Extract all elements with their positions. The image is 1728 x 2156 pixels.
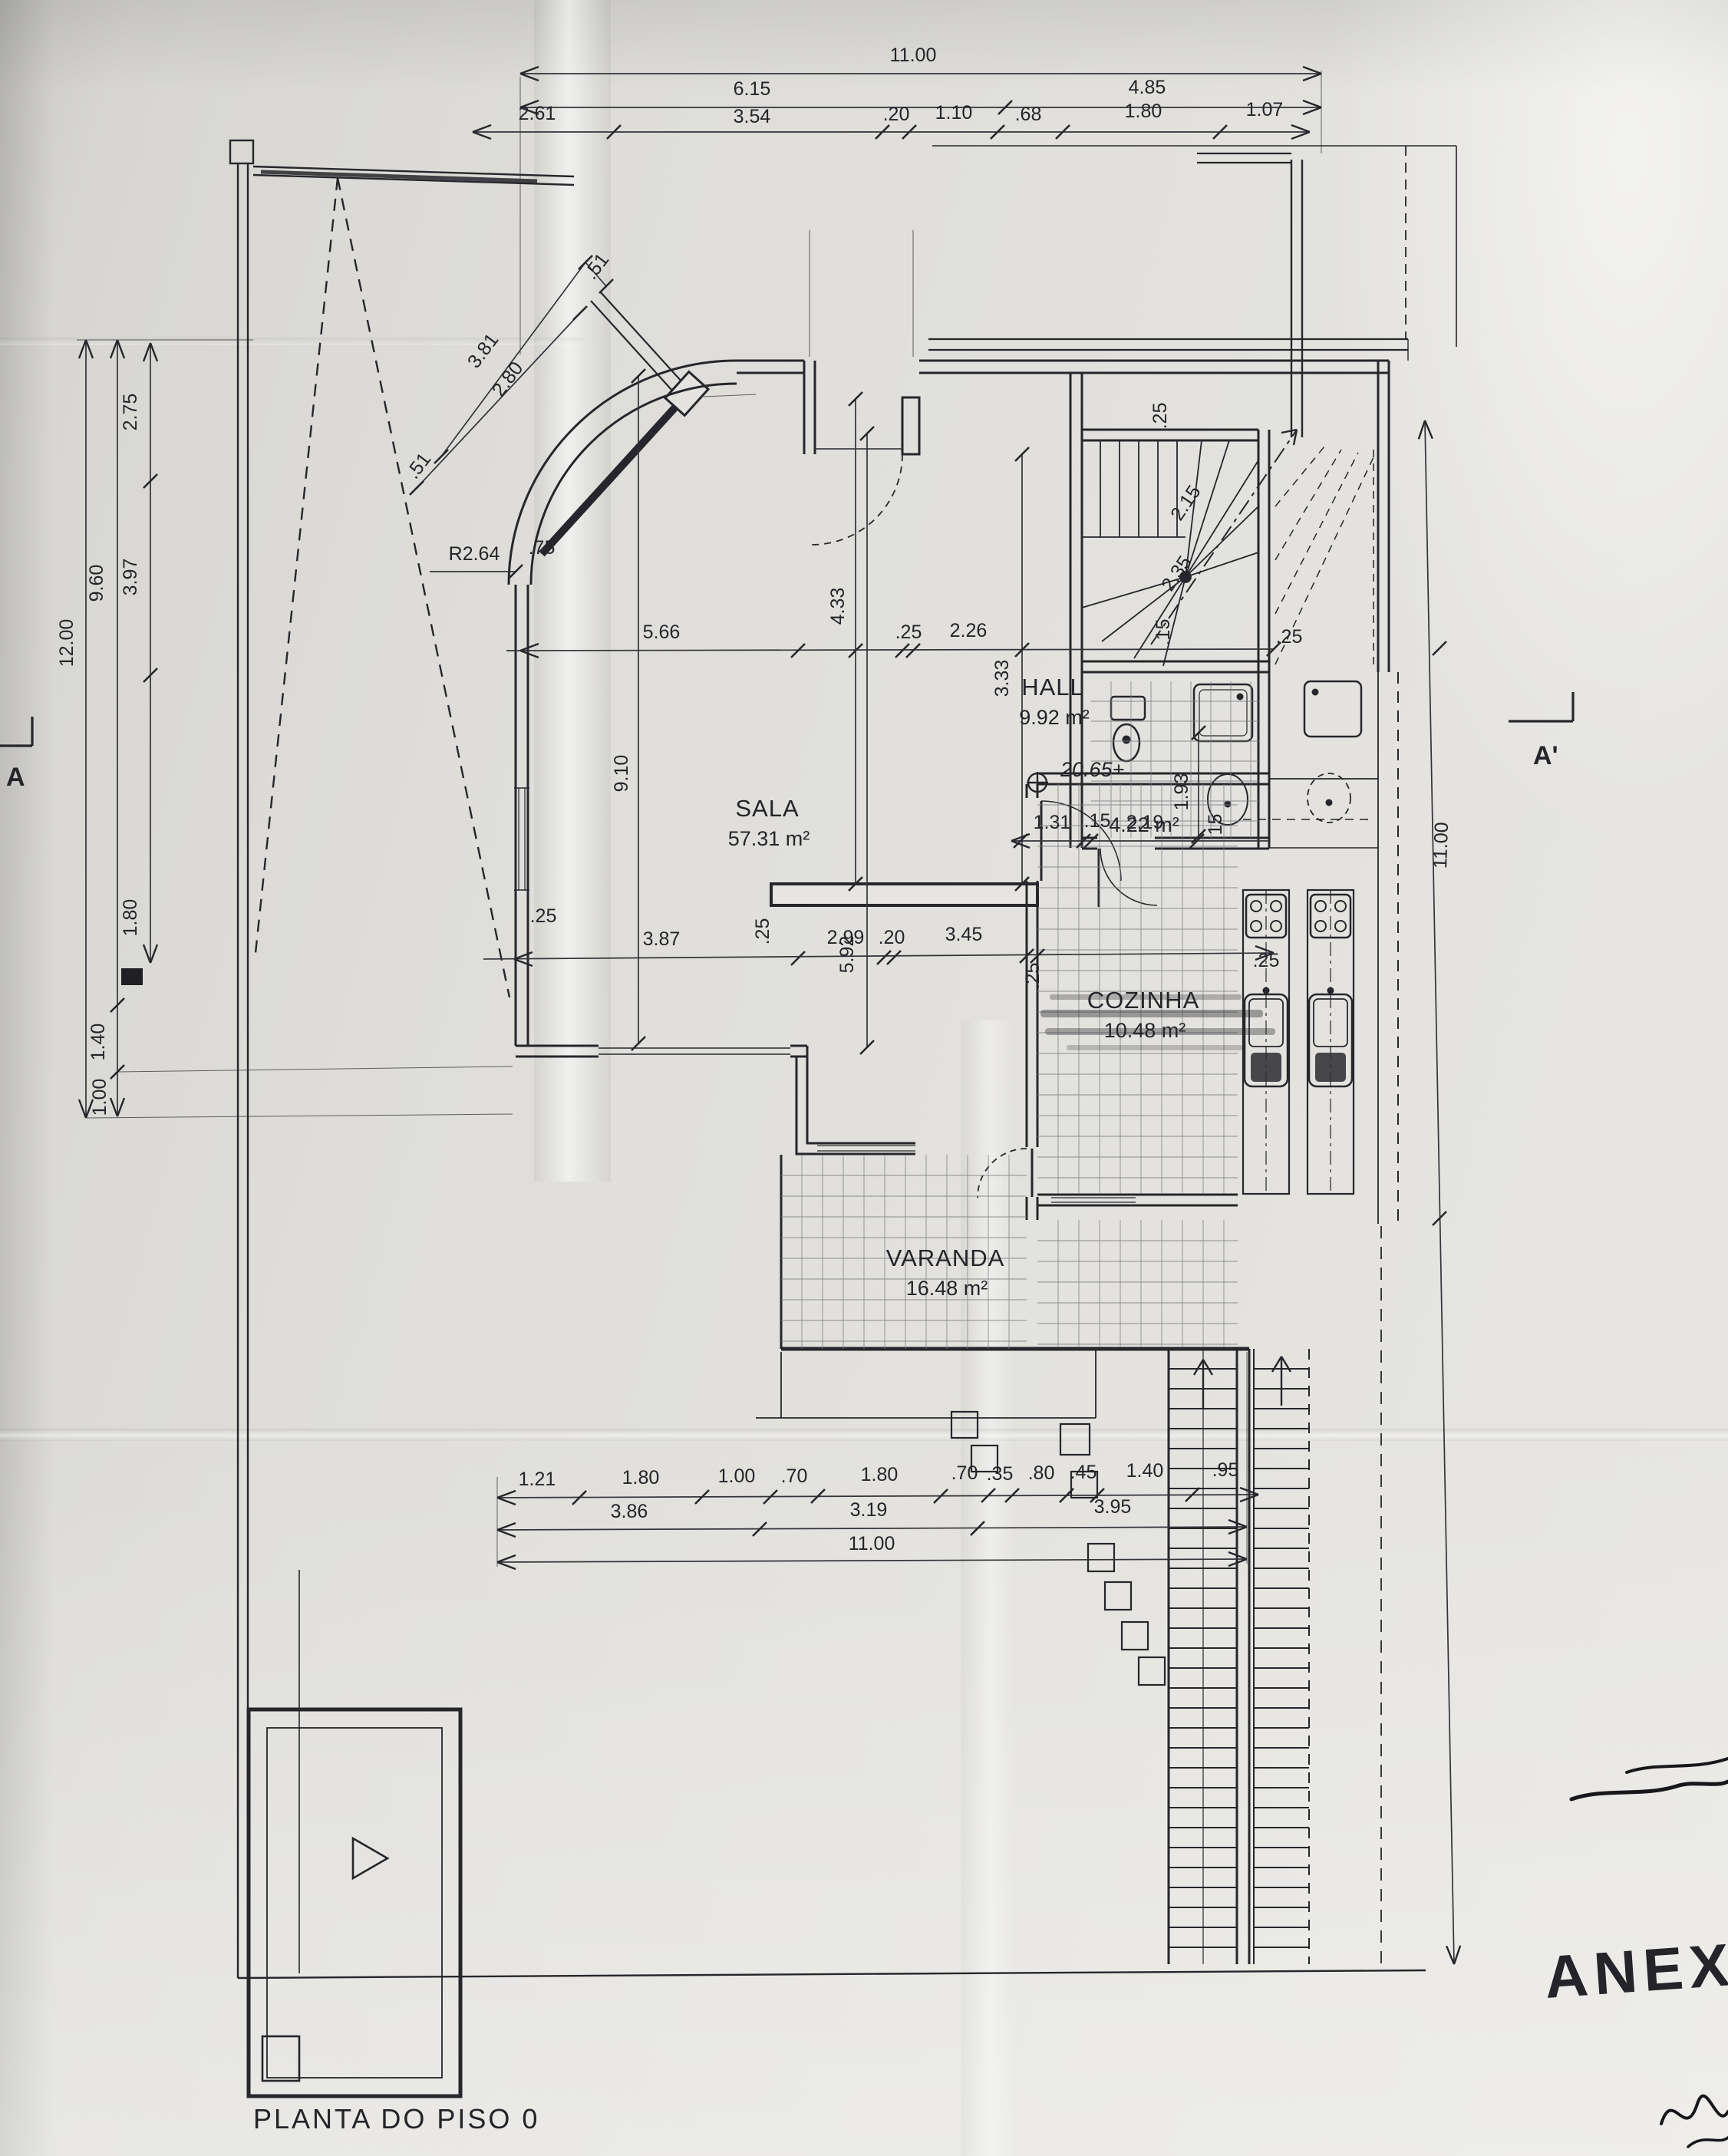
section-marker-a-prime [1509,692,1573,721]
dimension-label: .51 [402,449,435,483]
entry-door-leaf [902,397,919,454]
dimension-label: 2.80 [488,358,528,401]
dimension-label: 3.45 [945,924,983,945]
dimension-label: 3.19 [850,1499,888,1521]
level-label: 20.65+ [1060,758,1124,781]
dimension-label: R2.64 [449,543,500,565]
dimension-label: 11.00 [890,45,937,66]
site-boundary [230,140,1426,1978]
dimension-label: 2.75 [120,394,141,431]
dimension-label: .45 [1070,1462,1097,1483]
dimension-label: 1.21 [519,1469,556,1490]
dimension-label: 1.80 [861,1464,899,1485]
room-area-varanda: 16.48 m² [906,1277,988,1300]
curved-wall-inner [531,384,737,585]
kitchen-fixtures [1243,890,1354,1194]
dimension-label: 2.61 [519,103,556,124]
exterior-stair-walls [1169,1226,1381,1964]
veranda-door-swing [978,1149,1027,1198]
dimension-label: .25 [1253,950,1280,971]
dimension-label: .25 [530,905,557,927]
room-name-cozinha: COZINHA [1087,987,1200,1014]
dimension-label: .70 [951,1462,978,1484]
dimension-label: .25 [1276,626,1303,648]
dimension-label: 2.15 [1166,482,1205,525]
staircase [1082,430,1297,666]
scanned-floor-plan: A A' 20.65+ SALA57.31 m²HALL9.92 m²COZIN… [0,0,1728,2156]
dimension-label: 2.26 [950,620,988,641]
dimension-label: 1.31 [1034,812,1071,833]
dimension-label: .51 [580,249,613,284]
dimension-label: .25 [895,621,922,643]
plan-title: PLANTA DO PISO 0 [253,2103,539,2135]
floor-plan-drawing: A A' 20.65+ SALA57.31 m²HALL9.92 m²COZIN… [0,0,1728,2156]
dimension-label: .15 [1205,814,1226,841]
dimension-label: 1.80 [1125,101,1162,122]
dimension-label: 3.86 [611,1501,648,1522]
partition-wall [771,884,1037,905]
room-area-sala: 57.31 m² [728,827,810,850]
dimension-label: .70 [781,1465,808,1487]
dimension-label: 9.60 [86,565,107,602]
dimension-label: 1.00 [718,1465,756,1487]
dimension-label: 3.97 [120,559,141,596]
dimension-label: 5.66 [643,621,681,643]
dashed-projection-lines [256,178,509,997]
entry-door-swing [812,454,902,545]
dimension-label: .35 [987,1463,1014,1485]
shower-tray [1194,684,1252,741]
dimension-label: .25 [1149,403,1171,430]
dimension-label: .15 [1084,810,1111,832]
dimension-label: 1.07 [1246,99,1284,120]
exterior-stair-flights [1169,1349,1309,1964]
dimension-label: 3.81 [463,329,503,372]
section-label-a-prime: A' [1533,741,1558,770]
dimension-label: 12.00 [56,619,77,668]
annex-building [249,1709,460,2096]
dimension-label: 1.80 [120,899,141,937]
dimension-label: 3.95 [1094,1496,1132,1518]
dimension-label: .20 [879,927,905,948]
dimension-label: .25 [752,918,773,945]
dimension-label: 3.87 [643,928,681,950]
room-name-hall: HALL [1021,674,1084,701]
dimension-label: 4.33 [827,588,849,625]
dimension-label: .20 [883,104,910,125]
dimension-label: 1.00 [89,1079,110,1116]
room-name-sala: SALA [735,795,799,822]
dimension-label: 1.40 [87,1024,109,1061]
dimension-label: 1.93 [1171,773,1192,811]
annex-note: ANEXO [1542,1927,1728,2011]
dimension-label: 9.10 [611,755,632,793]
level-marker [1027,772,1048,793]
dimension-label: 2.99 [827,927,865,948]
dimension-label: .95 [1212,1459,1239,1481]
dimension-label: 4.85 [1129,77,1166,98]
section-label-a: A [6,763,25,792]
gate-marker [121,968,143,985]
room-area-hall: 9.92 m² [1019,706,1090,729]
entrance-walkway [542,292,708,554]
dimension-label: .68 [1015,104,1042,125]
dimension-label: 1.40 [1126,1460,1164,1482]
dimension-label: 6.15 [734,78,771,100]
section-marker-a [0,717,32,746]
dimension-label: 1.80 [622,1467,660,1488]
dimension-label: .15 [1153,619,1174,646]
wc-door-swing [1100,849,1157,905]
dimension-label: 3.54 [734,106,771,127]
dimension-label: 11.00 [849,1533,895,1554]
laundry-basin [1308,773,1350,823]
toilet-tank [1111,697,1145,720]
wc-fixtures [1111,681,1361,825]
dimension-label: 2.19 [1126,812,1164,833]
dimension-label: 3.33 [991,660,1013,697]
dimension-label: .80 [1028,1462,1055,1484]
main-house-walls [509,361,1398,1349]
dimension-label: 1.10 [935,102,973,124]
room-area-cozinha: 10.48 m² [1104,1019,1186,1042]
dimension-label: .25 [1022,963,1044,990]
dimension-label: 11.00 [1430,822,1453,869]
dimension-label: .75 [529,537,556,559]
room-name-varanda: VARANDA [886,1244,1005,1271]
